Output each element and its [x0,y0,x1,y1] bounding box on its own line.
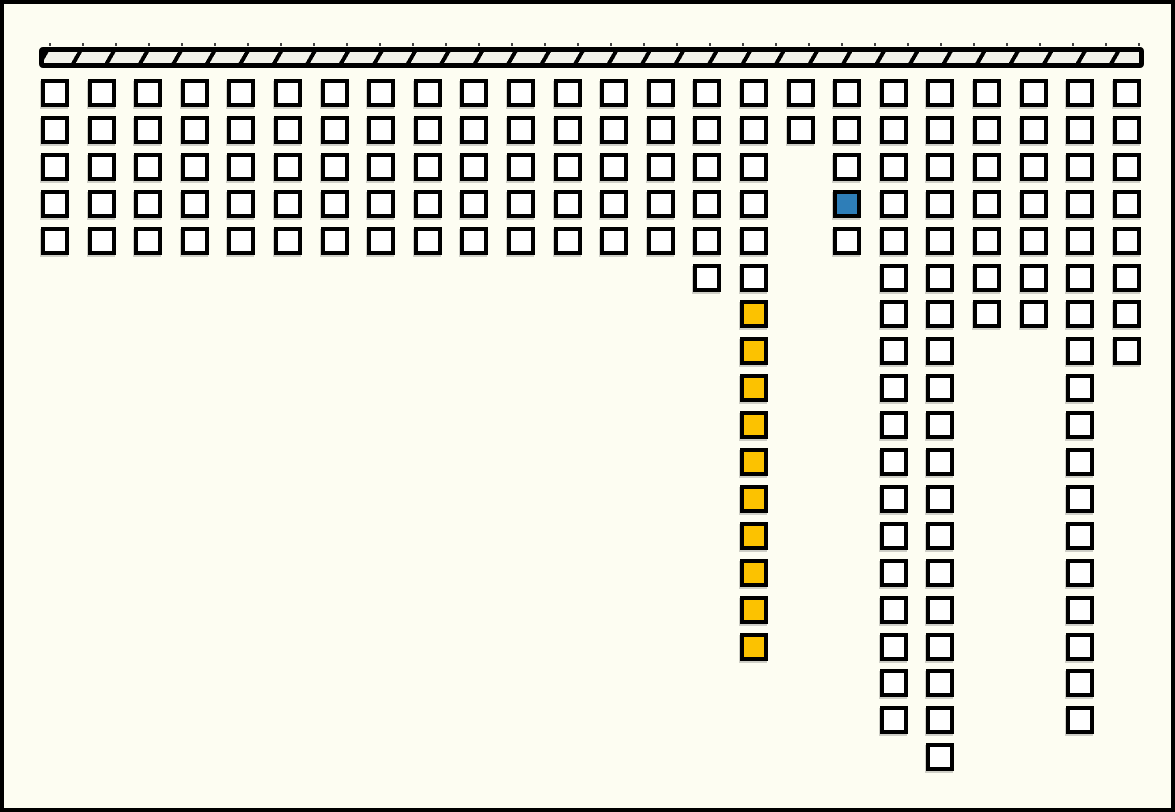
grid-square [1066,300,1094,328]
grid-square [274,116,302,144]
grid-square [880,300,908,328]
grid-square [926,337,954,365]
grid-square [227,227,255,255]
grid-square [41,79,69,107]
grid-square [1066,116,1094,144]
grid-square [321,153,349,181]
grid-square [880,153,908,181]
grid-square [460,227,488,255]
grid-square [1066,522,1094,550]
grid-square [740,116,768,144]
grid-square [926,706,954,734]
grid-square [1113,300,1141,328]
grid-square [880,633,908,661]
grid-square [1113,79,1141,107]
grid-square [1066,190,1094,218]
grid-square [926,559,954,587]
grid-square [740,79,768,107]
grid-square [507,153,535,181]
grid-square [973,264,1001,292]
yellow-highlight-square [740,485,768,513]
grid-square [41,190,69,218]
grid-square [460,116,488,144]
grid-square [926,227,954,255]
grid-square [926,485,954,513]
grid-square [41,153,69,181]
grid-square [693,116,721,144]
grid-square [740,227,768,255]
grid-square [600,190,628,218]
grid-square [554,116,582,144]
yellow-highlight-square [740,337,768,365]
grid-square [88,227,116,255]
grid-square [88,190,116,218]
yellow-highlight-square [740,633,768,661]
grid-square [973,227,1001,255]
grid-square [134,153,162,181]
grid-square [274,227,302,255]
grid-square [926,116,954,144]
grid-square [1020,264,1048,292]
grid-square [321,190,349,218]
grid-square [181,116,209,144]
grid-square [880,190,908,218]
ceiling-hatch-ticks [49,43,1142,46]
grid-square [1066,374,1094,402]
grid-square [321,227,349,255]
grid-square [507,116,535,144]
grid-square [647,116,675,144]
blue-highlight-square [833,190,861,218]
grid-square [88,153,116,181]
grid-square [880,116,908,144]
grid-square [926,79,954,107]
grid-square [1066,485,1094,513]
grid-square [554,79,582,107]
grid-square [88,79,116,107]
grid-square [787,79,815,107]
grid-square [600,153,628,181]
grid-square [227,153,255,181]
grid-square [1066,633,1094,661]
grid-square [833,153,861,181]
grid-square [1020,227,1048,255]
grid-square [740,190,768,218]
grid-square [1020,116,1048,144]
grid-square [134,227,162,255]
grid-square [926,522,954,550]
grid-square [926,374,954,402]
grid-square [1020,300,1048,328]
grid-square [693,79,721,107]
grid-square [507,190,535,218]
grid-square [181,79,209,107]
grid-square [460,153,488,181]
grid-square [693,153,721,181]
grid-square [1020,190,1048,218]
grid-square [414,116,442,144]
grid-square [926,300,954,328]
grid-square [880,374,908,402]
grid-square [1066,411,1094,439]
grid-square [414,190,442,218]
grid-square [274,190,302,218]
grid-square [880,411,908,439]
grid-square [1113,264,1141,292]
grid-square [647,153,675,181]
grid-square [880,596,908,624]
grid-square [507,227,535,255]
grid-square [1066,264,1094,292]
grid-square [973,190,1001,218]
grid-square [227,79,255,107]
yellow-highlight-square [740,300,768,328]
grid-square [880,264,908,292]
grid-square [647,227,675,255]
grid-square [181,190,209,218]
grid-square [600,227,628,255]
grid-square [973,116,1001,144]
grid-square [274,79,302,107]
grid-square [554,190,582,218]
grid-square [926,153,954,181]
grid-square [647,190,675,218]
grid-square [880,522,908,550]
grid-square [1066,337,1094,365]
grid-square [833,227,861,255]
grid-square [880,485,908,513]
grid-square [926,264,954,292]
grid-square [1020,153,1048,181]
grid-square [926,633,954,661]
grid-square [973,300,1001,328]
grid-square [880,559,908,587]
grid-square [227,116,255,144]
grid-square [321,79,349,107]
grid-square [367,190,395,218]
grid-square [460,190,488,218]
grid-square [1066,669,1094,697]
grid-square [1066,596,1094,624]
grid-square [600,79,628,107]
grid-square [134,79,162,107]
grid-square [926,448,954,476]
grid-square [367,153,395,181]
grid-square [181,153,209,181]
yellow-highlight-square [740,559,768,587]
grid-square [1113,227,1141,255]
grid-square [833,79,861,107]
grid-square [926,669,954,697]
grid-square [41,227,69,255]
grid-square [926,411,954,439]
grid-square [693,264,721,292]
grid-square [41,116,69,144]
yellow-highlight-square [740,448,768,476]
grid-square [1020,79,1048,107]
grid-square [880,337,908,365]
grid-square [880,669,908,697]
grid-square [973,153,1001,181]
grid-square [414,79,442,107]
grid-square [880,79,908,107]
grid-square [880,706,908,734]
grid-square [367,116,395,144]
grid-square [1066,153,1094,181]
grid-square [880,227,908,255]
yellow-highlight-square [740,596,768,624]
grid-square [833,116,861,144]
grid-square [600,116,628,144]
grid-square [414,153,442,181]
grid-square [1066,559,1094,587]
grid-square [414,227,442,255]
grid-square [134,116,162,144]
grid-square [367,227,395,255]
grid-square [1066,448,1094,476]
grid-square [973,79,1001,107]
grid-square [1113,190,1141,218]
yellow-highlight-square [740,522,768,550]
grid-square [1113,153,1141,181]
grid-square [647,79,675,107]
grid-square [181,227,209,255]
grid-square [926,743,954,771]
diagram-canvas [0,0,1175,812]
grid-square [693,227,721,255]
grid-square [88,116,116,144]
hatched-ceiling-bar [39,47,1144,68]
grid-square [274,153,302,181]
grid-square [926,596,954,624]
grid-square [787,116,815,144]
grid-square [1066,706,1094,734]
grid-square [1113,337,1141,365]
grid-square [1066,79,1094,107]
grid-square [1066,227,1094,255]
grid-square [740,264,768,292]
grid-square [880,448,908,476]
grid-square [693,190,721,218]
grid-square [554,227,582,255]
grid-square [554,153,582,181]
grid-square [367,79,395,107]
yellow-highlight-square [740,411,768,439]
grid-square [134,190,162,218]
grid-square [1113,116,1141,144]
grid-square [740,153,768,181]
grid-square [227,190,255,218]
grid-square [460,79,488,107]
grid-square [321,116,349,144]
grid-square [507,79,535,107]
grid-square [926,190,954,218]
yellow-highlight-square [740,374,768,402]
